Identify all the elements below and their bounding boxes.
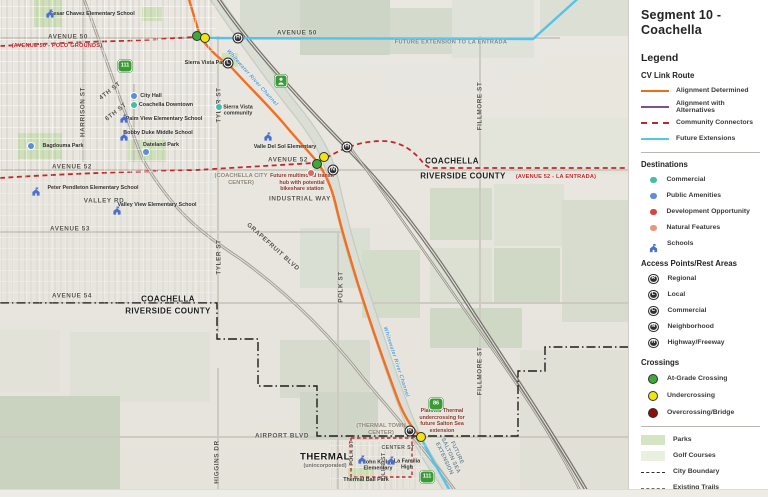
- label-future-salton-sea: FUTURE SALTON SEA EXTENSION: [431, 431, 469, 482]
- label-avenue-52-west: AVENUE 52: [52, 164, 92, 171]
- crossing-under-avenue-50: [200, 33, 210, 43]
- label-avenue-50-center: AVENUE 50: [277, 30, 317, 37]
- legend-divider-2: [641, 426, 760, 427]
- label-boundary-riverside-east: RIVERSIDE COUNTY: [420, 172, 506, 181]
- legend-item-highway-freeway: H Highway/Freeway: [641, 335, 760, 351]
- label-center-st: CENTER ST: [382, 445, 415, 451]
- label-bobby-duke-school: Bobby Duke Middle School: [123, 130, 192, 136]
- legend-item-undercrossing: Undercrossing: [641, 387, 760, 404]
- school-icon: [649, 240, 658, 249]
- label-thermal-town-center: (THERMAL TOWN CENTER): [352, 423, 410, 437]
- neighborhood-access-icon: N: [648, 322, 659, 333]
- section-destinations: Destinations: [641, 160, 760, 169]
- school-marker-valle-del-sol: [264, 133, 273, 142]
- legend-item-natural-features: Natural Features: [641, 220, 760, 236]
- label-peter-pendleton-school: Peter Pendleton Elementary School: [47, 185, 138, 191]
- label-avenue-50-west: AVENUE 50: [48, 34, 88, 41]
- label-fillmore-st-south: FILLMORE ST: [477, 347, 484, 396]
- future-extensions-swatch: [641, 138, 669, 140]
- crossing-under-thermal: [416, 432, 426, 442]
- poi-dot-transit-hub: [308, 170, 314, 176]
- legend-heading: Legend: [641, 52, 760, 64]
- label-boundary-coachella-west: COACHELLA: [141, 295, 195, 304]
- school-marker-bobby-duke: [120, 133, 129, 142]
- parks-swatch: [641, 435, 665, 445]
- legend-item-parks: Parks: [641, 432, 760, 448]
- label-polk-st-south: POLK ST: [349, 440, 355, 465]
- poi-dot-bagdouma-park: [28, 143, 34, 149]
- section-crossings: Crossings: [641, 358, 760, 367]
- access-point-highway-avenue-50: H: [233, 33, 244, 44]
- poi-dot-sierra-vista-community: [216, 104, 222, 110]
- access-point-neighborhood-avenue-52: N: [328, 165, 339, 176]
- map-title: Segment 10 - Coachella: [641, 8, 760, 38]
- label-thermal-unincorporated: (unincorporated): [303, 463, 346, 469]
- label-transit-hub-note: Future multimodal transit hub with poten…: [267, 173, 337, 193]
- legend-panel: Segment 10 - Coachella Legend CV Link Ro…: [628, 0, 768, 497]
- label-boundary-riverside-west: RIVERSIDE COUNTY: [125, 307, 211, 316]
- commercial-access-icon: C: [648, 306, 659, 317]
- label-city-hall: City Hall: [140, 93, 162, 99]
- label-valley-rd: VALLEY RD: [84, 198, 125, 205]
- commercial-dot: [650, 177, 657, 184]
- rest-area-marker-channel: [275, 75, 288, 88]
- poi-dot-dateland-park: [143, 149, 149, 155]
- legend-item-overcrossing: Overcrossing/Bridge: [641, 404, 760, 421]
- natural-features-dot: [650, 225, 657, 232]
- legend-item-neighborhood: N Neighborhood: [641, 319, 760, 335]
- label-dateland-park: Dateland Park: [143, 142, 179, 148]
- map-canvas[interactable]: AVENUE 50AVENUE 50(AVENUE 50 - POLO GROU…: [0, 0, 628, 497]
- school-marker-peter-pendleton: [32, 188, 41, 197]
- legend-divider-1: [641, 152, 760, 153]
- label-future-extension: FUTURE EXTENSION TO LA ENTRADA: [395, 40, 508, 47]
- label-bagdouma-park: Bagdouma Park: [42, 143, 83, 149]
- public-amenities-dot: [650, 193, 657, 200]
- map-overlay: AVENUE 50AVENUE 50(AVENUE 50 - POLO GROU…: [0, 0, 628, 497]
- label-thermal-city: THERMAL: [300, 452, 350, 463]
- legend-item-future-extensions: Future Extensions: [641, 131, 760, 147]
- access-point-regional-thermal: R: [405, 426, 416, 437]
- label-whitewater-channel-north: Whitewater River Channel: [225, 49, 279, 108]
- city-boundary-swatch: [641, 472, 665, 473]
- school-marker-valley-view: [113, 207, 122, 216]
- page-footer-strip: [0, 489, 768, 497]
- legend-item-local: L Local: [641, 287, 760, 303]
- school-marker-palm-view: [120, 115, 129, 124]
- legend-item-schools: Schools: [641, 236, 760, 252]
- at-grade-crossing-icon: [648, 374, 658, 384]
- label-fillmore-st-north: FILLMORE ST: [477, 82, 484, 131]
- legend-item-community-connectors: Community Connectors: [641, 115, 760, 131]
- label-harrison-st: HARRISON ST: [80, 87, 87, 137]
- section-access-points: Access Points/Rest Areas: [641, 259, 760, 268]
- overcrossing-icon: [648, 408, 658, 418]
- label-industrial-way: INDUSTRIAL WAY: [269, 196, 331, 203]
- legend-item-alignment-alternatives: Alignment with Alternatives: [641, 99, 760, 115]
- label-valle-del-sol-school: Valle Del Sol Elementary: [254, 144, 317, 150]
- local-access-icon: L: [648, 290, 659, 301]
- label-coachella-city-center: (COACHELLA CITY CENTER): [210, 173, 272, 187]
- label-valley-view-school: Valley View Elementary School: [117, 202, 196, 208]
- school-marker-cesar-chavez: [46, 10, 55, 19]
- poi-dot-coachella-downtown: [131, 102, 137, 108]
- label-polk-st-north: POLK ST: [338, 271, 345, 303]
- route-shield-86: 86: [429, 398, 444, 411]
- route-shield-111-north: 111: [118, 60, 133, 73]
- label-la-entrada: (AVENUE 52 - LA ENTRADA): [516, 174, 596, 180]
- label-avenue-54: AVENUE 54: [52, 293, 92, 300]
- label-sierra-vista-park: Sierra Vista Park: [185, 60, 228, 66]
- label-grapefruit-blvd: GRAPEFRUIT BLVD: [245, 222, 300, 273]
- label-thermal-undercrossing-note: Planned Thermal undercrossing for future…: [416, 408, 468, 434]
- legend-item-commercial-dest: Commercial: [641, 172, 760, 188]
- legend-item-public-amenities: Public Amenities: [641, 188, 760, 204]
- legend-item-at-grade-crossing: At-Grade Crossing: [641, 370, 760, 387]
- label-palm-view-school: Palm View Elementary School: [126, 116, 203, 122]
- map-document: AVENUE 50AVENUE 50(AVENUE 50 - POLO GROU…: [0, 0, 768, 497]
- label-coachella-downtown: Coachella Downtown: [139, 102, 193, 108]
- access-point-local-sierra-vista: L: [223, 58, 234, 69]
- label-whitewater-channel-south: Whitewater River Channel: [382, 326, 410, 398]
- poi-dot-city-hall: [131, 93, 137, 99]
- legend-item-alignment-determined: Alignment Determined: [641, 83, 760, 99]
- alignment-determined-swatch: [641, 90, 669, 92]
- undercrossing-icon: [648, 391, 658, 401]
- route-shield-111-south: 111: [420, 471, 435, 484]
- crossing-under-avenue-52: [319, 152, 329, 162]
- label-cesar-chavez-school: Cesar Chavez Elementary School: [49, 11, 134, 17]
- label-avenue-53: AVENUE 53: [50, 226, 90, 233]
- regional-access-icon: R: [648, 274, 659, 285]
- legend-item-commercial-access: C Commercial: [641, 303, 760, 319]
- label-avenue-52-center: AVENUE 52: [268, 157, 308, 164]
- legend-item-city-boundary: City Boundary: [641, 464, 760, 480]
- legend-item-golf-courses: Golf Courses: [641, 448, 760, 464]
- highway-access-icon: H: [648, 338, 659, 349]
- label-thermal-ball-park: Thermal Ball Park: [343, 477, 389, 483]
- label-tyler-st-south: TYLER ST: [216, 239, 223, 274]
- label-airport-blvd: AIRPORT BLVD: [255, 433, 309, 440]
- development-opportunity-dot: [650, 209, 657, 216]
- label-boundary-coachella-east: COACHELLA: [425, 157, 479, 166]
- school-marker-john-kelley: [358, 456, 367, 465]
- community-connectors-swatch: [641, 122, 669, 124]
- label-higgins-dr: HIGGINS DR: [214, 440, 221, 483]
- access-point-highway-avenue-52: H: [342, 142, 353, 153]
- golf-courses-swatch: [641, 451, 665, 461]
- label-4th-st: 4TH ST: [98, 80, 122, 101]
- school-marker-la-familia: [387, 457, 396, 466]
- section-cv-link-route: CV Link Route: [641, 71, 760, 80]
- legend-item-development-opportunity: Development Opportunity: [641, 204, 760, 220]
- legend-item-regional: R Regional: [641, 271, 760, 287]
- alignment-alternatives-swatch: [641, 106, 669, 108]
- label-polo-grounds: (AVENUE 50 - POLO GROUNDS): [12, 43, 103, 49]
